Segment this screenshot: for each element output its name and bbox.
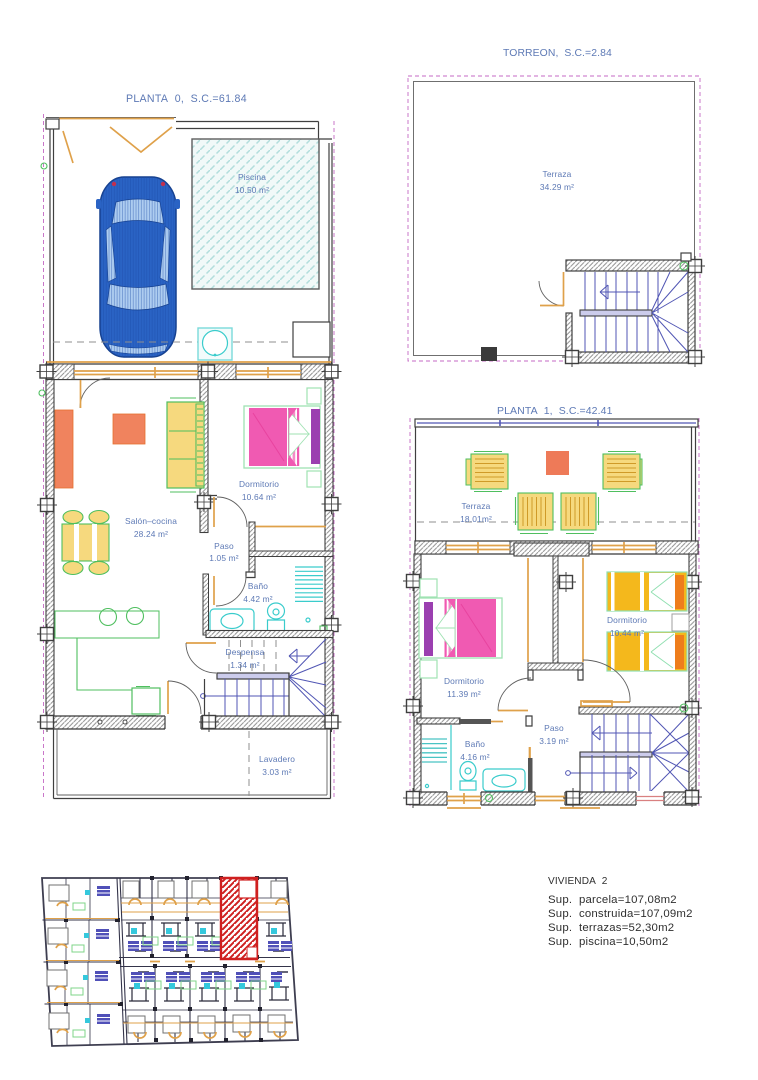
- svg-text:34.29 m²: 34.29 m²: [540, 182, 574, 192]
- svg-text:Despensa: Despensa: [226, 647, 265, 657]
- svg-text:Lavadero: Lavadero: [259, 754, 295, 764]
- svg-text:1.34 m²: 1.34 m²: [230, 660, 260, 670]
- svg-text:Piscina: Piscina: [238, 172, 266, 182]
- svg-text:10.50 m²: 10.50 m²: [235, 185, 269, 195]
- svg-text:Paso: Paso: [544, 723, 564, 733]
- svg-text:Paso: Paso: [214, 541, 234, 551]
- svg-text:VIVIENDA 2: VIVIENDA 2: [548, 876, 608, 887]
- svg-text:Terraza: Terraza: [543, 169, 572, 179]
- svg-text:18.01m²: 18.01m²: [460, 514, 492, 524]
- svg-text:Sup. construida=107,09m2: Sup. construida=107,09m2: [548, 908, 693, 920]
- svg-text:Dormitorio: Dormitorio: [239, 479, 279, 489]
- svg-text:3.19 m²: 3.19 m²: [539, 736, 569, 746]
- svg-text:4.16 m²: 4.16 m²: [460, 752, 490, 762]
- svg-text:4.42 m²: 4.42 m²: [243, 594, 273, 604]
- svg-text:TORREON, S.C.=2.84: TORREON, S.C.=2.84: [503, 48, 612, 59]
- svg-text:10.44 m²: 10.44 m²: [610, 628, 644, 638]
- svg-text:Terraza: Terraza: [462, 501, 491, 511]
- svg-text:3.03 m²: 3.03 m²: [262, 767, 292, 777]
- svg-text:Dormitorio: Dormitorio: [607, 615, 647, 625]
- svg-text:Dormitorio: Dormitorio: [444, 676, 484, 686]
- svg-text:Baño: Baño: [465, 739, 485, 749]
- svg-text:Sup. piscina=10,50m2: Sup. piscina=10,50m2: [548, 936, 668, 948]
- svg-text:Sup. terrazas=52,30m2: Sup. terrazas=52,30m2: [548, 922, 674, 934]
- svg-text:PLANTA 1, S.C.=42.41: PLANTA 1, S.C.=42.41: [497, 405, 613, 417]
- svg-text:Sup. parcela=107,08m2: Sup. parcela=107,08m2: [548, 894, 677, 906]
- svg-text:10.64 m²: 10.64 m²: [242, 492, 276, 502]
- svg-text:Baño: Baño: [248, 581, 268, 591]
- svg-text:PLANTA 0, S.C.=61.84: PLANTA 0, S.C.=61.84: [126, 93, 247, 105]
- svg-text:1.05 m²: 1.05 m²: [209, 553, 239, 563]
- svg-text:Salón–cocina: Salón–cocina: [125, 516, 177, 526]
- svg-text:28.24 m²: 28.24 m²: [134, 529, 168, 539]
- svg-text:11.39 m²: 11.39 m²: [447, 689, 481, 699]
